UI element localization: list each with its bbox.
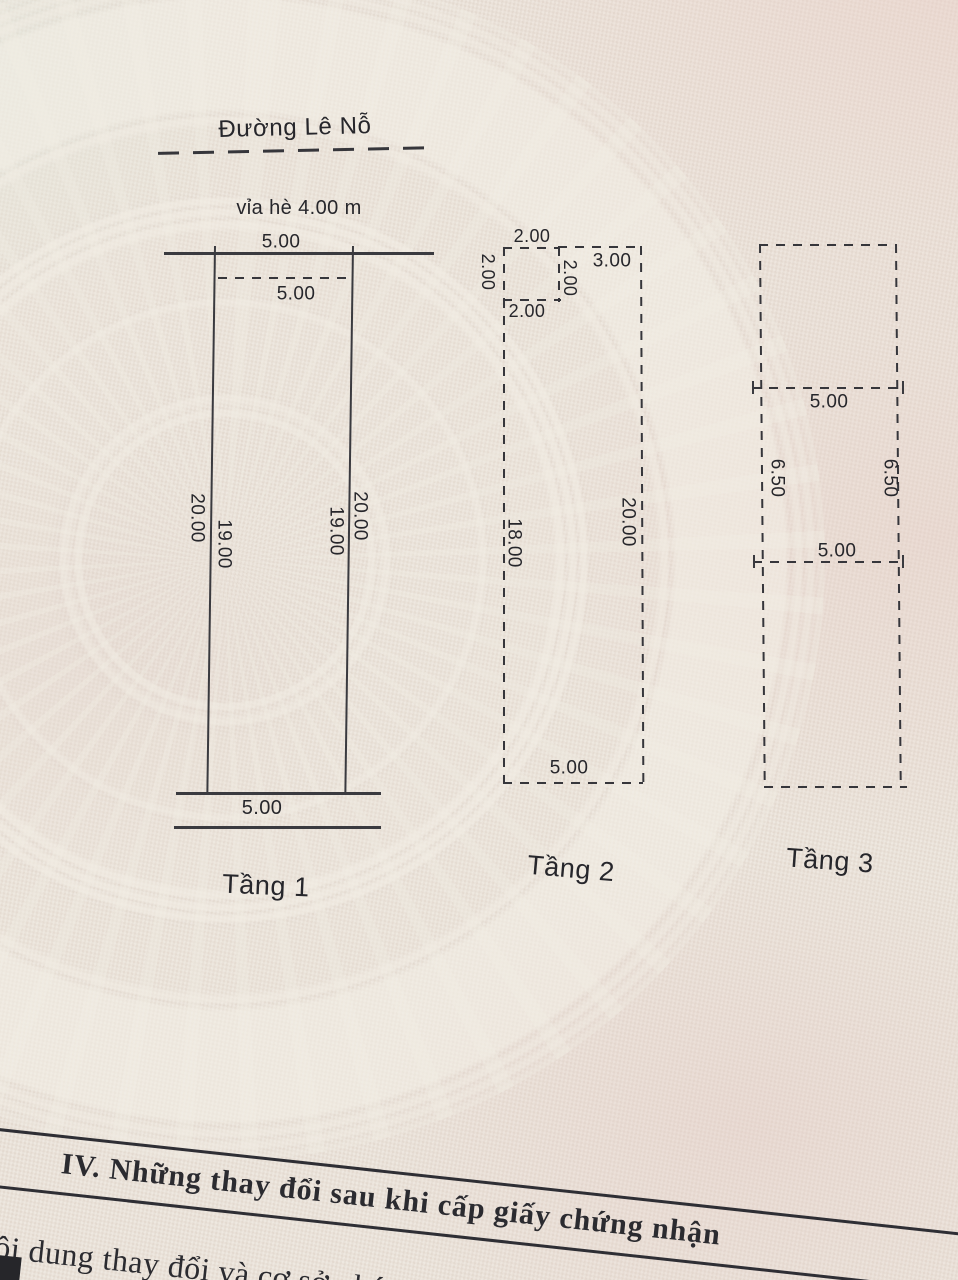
floor3-lower-divider-right-tick [902,555,904,568]
floor1-dim-depth-right-inner: 19.00 [327,506,346,556]
street-boundary-dashed-line [158,146,436,155]
floor2-top-edge [558,246,642,248]
floor3-bottom-edge [764,786,907,788]
floor3-dim-height-right: 6.50 [881,459,900,498]
floor2-dim-notch-bottom: 2.00 [509,302,546,320]
floor3-dim-height-left: 6.50 [768,459,787,498]
floor3-upper-divider-left-tick [752,381,754,394]
floor2-dim-notch-inner: 2.00 [561,260,579,297]
floor2-dim-depth-left: 18.00 [505,518,524,568]
section-iv-heading: IV. Những thay đổi sau khi cấp giấy chứn… [60,1147,723,1252]
floor1-front-line [164,252,434,255]
sidewalk-label: vỉa hè 4.00 m [236,198,361,218]
floor3-upper-divider [752,387,904,389]
floor2-dim-depth-right: 20.00 [619,497,638,547]
floor1-dim-depth-left-inner: 19.00 [215,519,234,569]
floor1-dim-setback: 5.00 [277,285,316,304]
floor1-label: Tầng 1 [222,871,311,902]
floor3-dim-width-upper: 5.00 [810,393,849,412]
floor3-label: Tầng 3 [785,844,874,877]
floor2-label: Tầng 2 [526,852,616,887]
floor3-lower-divider [753,561,904,563]
floor2-notch-left-edge [503,247,505,301]
floor1-setback-dashed-line [218,277,350,279]
floor2-bottom-edge [503,782,643,784]
dong-son-drum-watermark [0,0,825,1160]
floor3-top-edge [759,244,897,246]
floor3-right-edge [895,244,902,787]
floor2-dim-top-right: 3.00 [593,252,632,271]
floor2-right-edge [640,246,644,784]
floor2-dim-notch-left: 2.00 [479,254,497,291]
floor2-dim-notch-top: 2.00 [514,227,551,245]
certificate-photo-page: Đường Lê Nỗ vỉa hè 4.00 m 5.00 5.00 20.0… [0,0,958,1280]
street-name-label: Đường Lê Nỗ [218,114,372,142]
floor1-rear-line [176,792,381,795]
section-iv-row-label: Nội dung thay đổi và cơ sở pháp lý [0,1226,437,1280]
floor1-dim-depth-right-outer: 20.00 [351,491,370,541]
bottom-left-dark-mark [0,1255,22,1280]
floor3-dim-width-lower: 5.00 [818,542,857,561]
floor1-dim-width-top: 5.00 [262,233,301,252]
floor3-upper-divider-right-tick [902,381,904,394]
floor2-dim-width-bottom: 5.00 [550,759,589,778]
floor3-left-edge [759,244,766,787]
floor3-lower-divider-left-tick [753,555,755,568]
floor2-notch-top-edge [503,247,560,249]
certificate-section-iv: IV. Những thay đổi sau khi cấp giấy chứn… [0,1126,958,1280]
floor1-rear-outer-line [174,826,381,829]
floor1-dim-depth-left-outer: 20.00 [188,493,207,543]
floor1-dim-width-bottom: 5.00 [242,798,283,818]
